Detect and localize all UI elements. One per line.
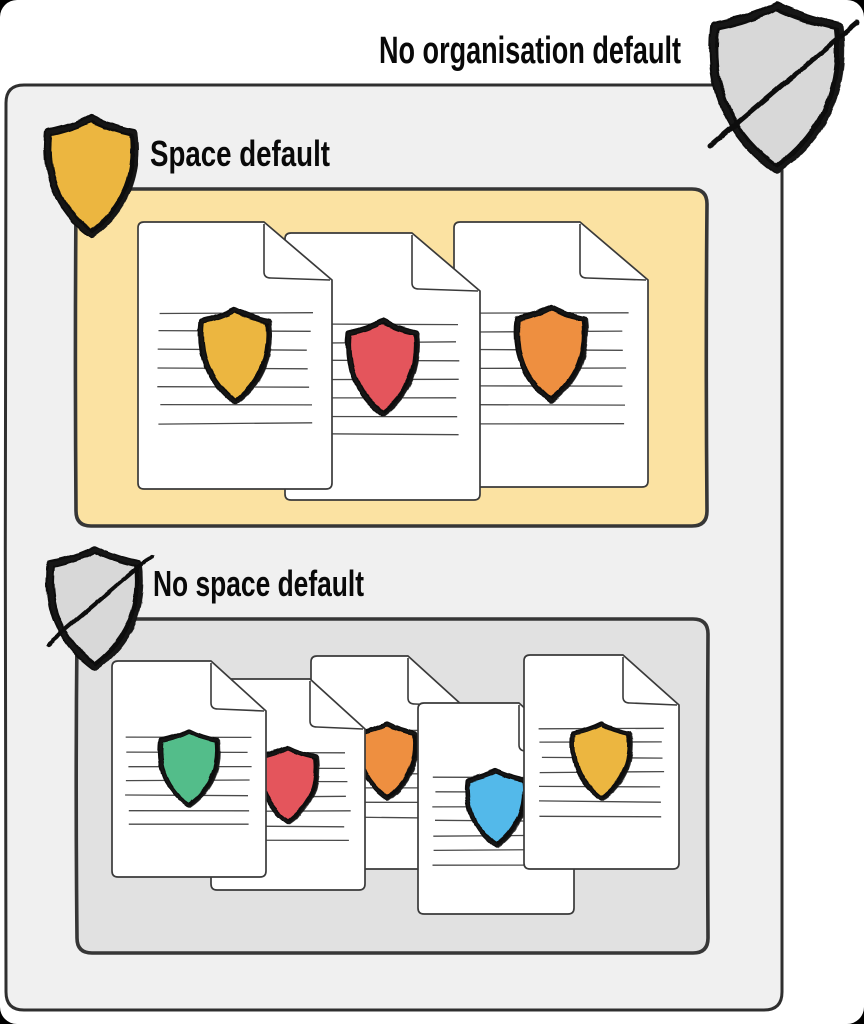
svg-text:No space default: No space default bbox=[153, 563, 364, 604]
svg-text:No organisation default: No organisation default bbox=[379, 30, 681, 72]
svg-text:Space default: Space default bbox=[150, 133, 330, 174]
